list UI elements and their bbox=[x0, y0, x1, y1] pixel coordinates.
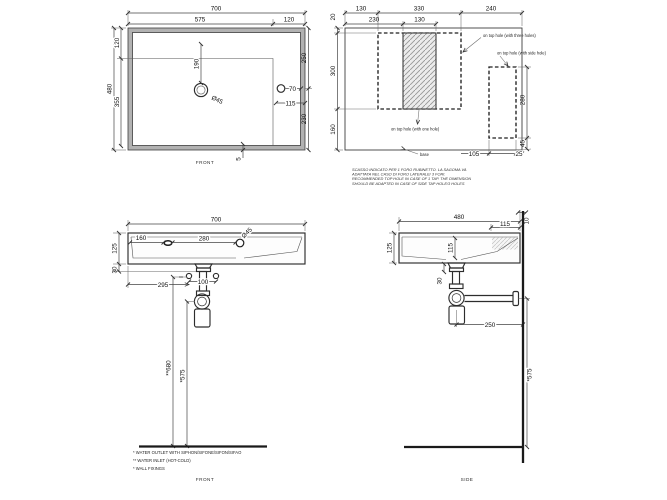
dim-side-10: 10 bbox=[524, 217, 531, 225]
dim-front-295: 295 bbox=[158, 282, 169, 289]
footnote-2: ** WATER INLET (HOT-COLD) bbox=[133, 458, 191, 463]
dim-plan-575: 575 bbox=[195, 17, 206, 24]
dim-base-280: 280 bbox=[520, 94, 527, 105]
front-elevation-label: FRONT bbox=[196, 477, 214, 482]
dim-front-700: 700 bbox=[211, 217, 222, 224]
water-inlet-right-icon bbox=[213, 273, 218, 278]
footnote-3: * WALL FIXINGS bbox=[133, 466, 165, 471]
side-elevation-view: 480 115 10 125 115 30 250 bbox=[386, 210, 533, 482]
plan-view-label: FRONT bbox=[196, 160, 214, 165]
front-basin-profile bbox=[128, 233, 305, 264]
note-line-4: SHOULD BE ADAPTED IN CASE OF SIDE TAP HO… bbox=[352, 181, 465, 186]
dim-base-160: 160 bbox=[330, 124, 337, 135]
dim-base-45: 45 bbox=[520, 140, 527, 148]
dim-base-105: 105 bbox=[469, 151, 480, 158]
fixing-hole-left-icon bbox=[164, 241, 172, 246]
dim-side-480: 480 bbox=[454, 214, 465, 221]
plan-view: 700 575 120 480 120 355 250 230 190 Ø45 … bbox=[107, 6, 313, 166]
dim-plan-250: 250 bbox=[301, 52, 308, 63]
note-side-hole: on top hole (with side hole) bbox=[497, 51, 547, 56]
dim-base-230: 230 bbox=[369, 17, 380, 24]
dim-side-575: *575 bbox=[527, 368, 534, 381]
siphon-trap-side bbox=[448, 263, 519, 324]
footnote-1: * WATER OUTLET WITH SIPHON/SIFONE/SIFON/… bbox=[133, 450, 242, 455]
siphon-trap-front bbox=[194, 264, 212, 327]
dim-front-680: **680 bbox=[166, 360, 173, 376]
dim-front-100: 100 bbox=[198, 279, 209, 286]
dim-base-330: 330 bbox=[414, 6, 425, 13]
note-base: base bbox=[420, 152, 430, 157]
drawing-canvas: 700 575 120 480 120 355 250 230 190 Ø45 … bbox=[0, 0, 667, 500]
dim-plan-700: 700 bbox=[211, 6, 222, 13]
footnotes: * WATER OUTLET WITH SIPHON/SIFONE/SIFON/… bbox=[133, 450, 242, 471]
dim-front-125: 125 bbox=[111, 243, 118, 254]
dim-plan-70: 70 bbox=[289, 86, 297, 93]
side-elevation-label: SIDE bbox=[461, 477, 474, 482]
dim-plan-480: 480 bbox=[107, 83, 114, 94]
dim-front-160: 160 bbox=[136, 235, 147, 242]
dim-plan-115: 115 bbox=[285, 100, 296, 107]
dim-plan-190: 190 bbox=[194, 58, 201, 69]
water-inlet-left-icon bbox=[186, 273, 191, 278]
dim-front-30: 30 bbox=[111, 266, 118, 274]
dim-side-250: 250 bbox=[485, 322, 496, 329]
deck-section-hatch bbox=[492, 238, 518, 250]
dim-plan-120-top: 120 bbox=[114, 37, 121, 48]
front-elevation-view: Ø45 160 280 700 125 30 ** 100 bbox=[111, 217, 305, 483]
base-plan-view: 130 330 240 230 130 20 300 160 280 45 10… bbox=[330, 6, 547, 186]
technical-drawing: 700 575 120 480 120 355 250 230 190 Ø45 … bbox=[0, 0, 667, 500]
dim-plan-5: 5 bbox=[236, 157, 243, 161]
dim-side-115-bowl: 115 bbox=[447, 242, 454, 253]
note-three-holes: on top hole (with three holes) bbox=[483, 33, 536, 38]
dim-base-300: 300 bbox=[330, 65, 337, 76]
one-hole-cutout bbox=[403, 33, 436, 109]
dim-base-130: 130 bbox=[356, 6, 367, 13]
dim-side-125: 125 bbox=[386, 242, 393, 253]
dim-plan-355: 355 bbox=[114, 96, 121, 107]
dim-side-30: 30 bbox=[437, 277, 444, 285]
note-block: SCASSO INDICATO PER 1 FORO RUBINETTO. LA… bbox=[351, 167, 471, 186]
dim-front-575: *575 bbox=[180, 369, 187, 382]
plan-deck bbox=[133, 33, 301, 146]
dim-side-115: 115 bbox=[500, 221, 511, 228]
dim-plan-120-right: 120 bbox=[284, 17, 295, 24]
dim-plan-230: 230 bbox=[301, 113, 308, 124]
dim-base-240: 240 bbox=[486, 6, 497, 13]
dim-base-25: 25 bbox=[515, 151, 523, 158]
dim-base-20: 20 bbox=[330, 13, 337, 21]
dim-front-280: 280 bbox=[199, 236, 210, 243]
fixing-hole-right-icon bbox=[236, 239, 244, 247]
dim-base-130b: 130 bbox=[414, 17, 425, 24]
note-one-hole: on top hole (with one hole) bbox=[391, 127, 440, 132]
